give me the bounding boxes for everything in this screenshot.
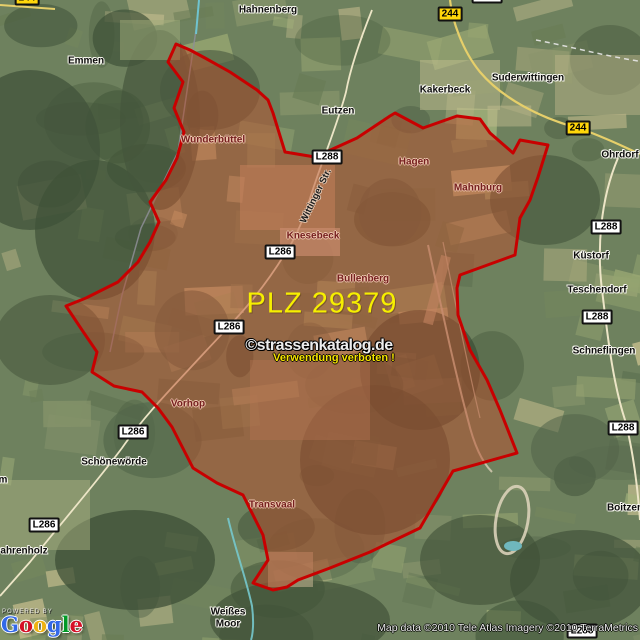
- place-label: Teschendorf: [567, 285, 626, 296]
- watermark-warning: Verwendung verboten !: [273, 352, 395, 364]
- place-label: Weißes: [211, 607, 246, 618]
- place-label: m: [0, 475, 7, 486]
- place-label: Eutzen: [322, 106, 355, 117]
- place-label: Hahnenberg: [239, 5, 297, 16]
- road-badge-l286: L286: [118, 425, 149, 440]
- place-label: Moor: [216, 619, 240, 630]
- google-logo[interactable]: Google: [1, 612, 83, 637]
- google-logo-letter: o: [19, 612, 33, 637]
- google-logo-letter: l: [62, 612, 70, 637]
- place-label: Hagen: [399, 157, 430, 168]
- road-badge-l288: L288: [608, 421, 639, 436]
- road-badge-l286: L286: [29, 518, 60, 533]
- plz-code-label: PLZ 29379: [247, 288, 398, 321]
- place-label: ahrenholz: [0, 546, 47, 557]
- map-attribution: Map data ©2010 Tele Atlas Imagery ©2010 …: [377, 622, 638, 634]
- road-badge-244: 244: [566, 121, 591, 136]
- place-label: Mahnburg: [454, 183, 502, 194]
- road-badge-244: 244: [438, 7, 463, 22]
- google-logo-letter: g: [47, 612, 62, 637]
- place-label: Knesebeck: [287, 231, 340, 242]
- place-label: Bullenberg: [337, 274, 389, 285]
- place-label: Vorhop: [171, 399, 205, 410]
- place-label: Küstorf: [573, 251, 609, 262]
- road-badge-244: 244: [15, 0, 40, 6]
- place-label: Boitzen: [607, 503, 640, 514]
- google-logo-letter: o: [33, 612, 47, 637]
- place-label: Emmen: [68, 56, 104, 67]
- place-label: Schönewörde: [81, 457, 147, 468]
- pond: [504, 541, 522, 551]
- map-viewport: HahnenbergEmmenEutzenKakerbeckSuderwitti…: [0, 0, 640, 640]
- road-badge-l288: L288: [312, 150, 343, 165]
- place-label: Ohrdorf: [601, 150, 638, 161]
- road-badge-l288: L288: [591, 220, 622, 235]
- road-badge-l286: L286: [214, 320, 245, 335]
- place-label: Transvaal: [249, 500, 295, 511]
- place-label: Wunderbüttel: [181, 135, 245, 146]
- place-label: Schneflingen: [573, 346, 636, 357]
- place-label: Suderwittingen: [492, 73, 564, 84]
- google-logo-letter: e: [70, 612, 83, 637]
- google-logo-letter: G: [1, 612, 19, 637]
- place-label: Kakerbeck: [420, 85, 471, 96]
- road-badge-l288: L288: [582, 310, 613, 325]
- road-badge-l286: L286: [265, 245, 296, 260]
- road-badge-l288: L288: [472, 0, 503, 4]
